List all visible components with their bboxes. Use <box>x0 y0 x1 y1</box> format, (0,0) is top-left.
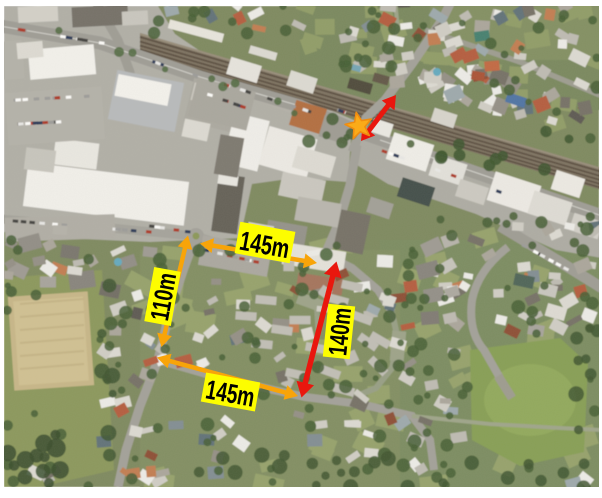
svg-text:140m: 140m <box>322 306 357 357</box>
